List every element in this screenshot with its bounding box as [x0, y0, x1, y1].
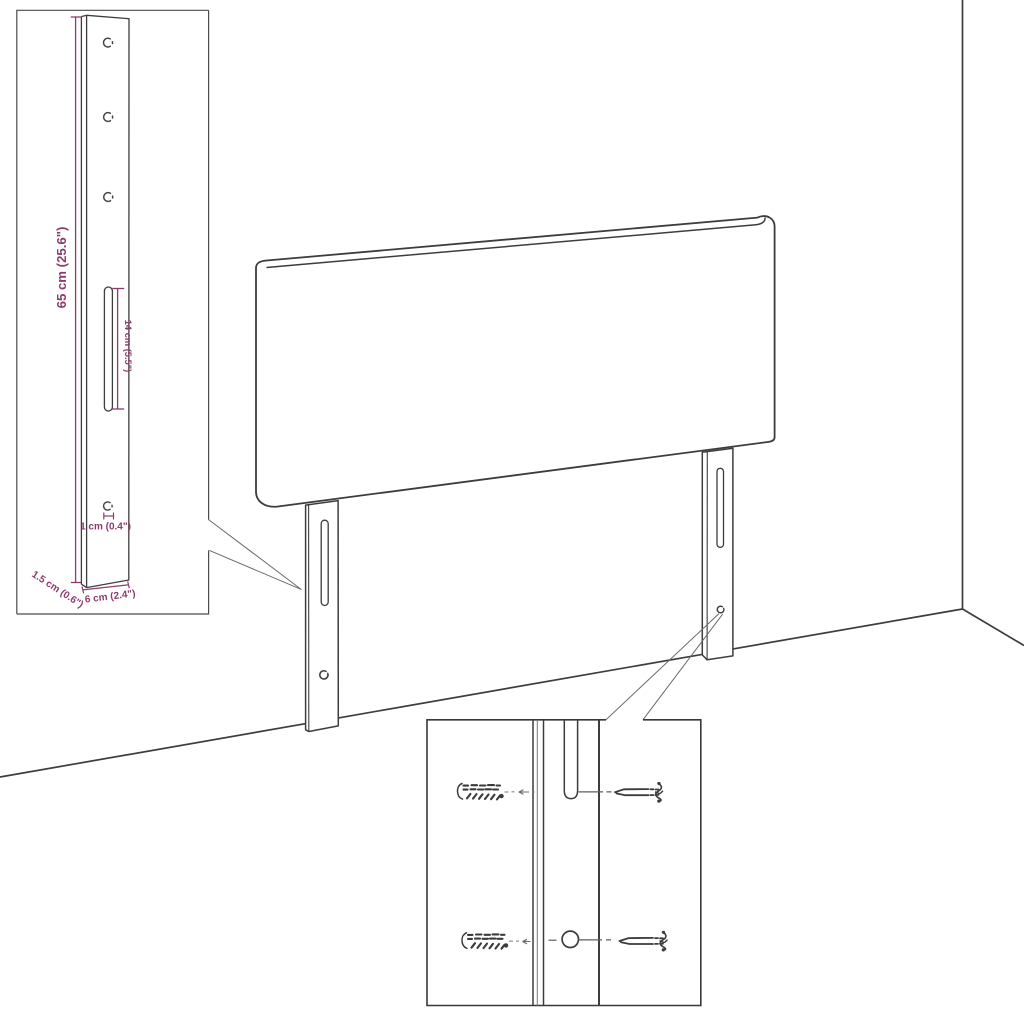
svg-text:65 cm (25.6"): 65 cm (25.6")	[54, 227, 69, 309]
svg-text:14 cm (5.5"): 14 cm (5.5")	[123, 320, 133, 372]
svg-text:1 cm (0.4"): 1 cm (0.4")	[80, 522, 131, 533]
